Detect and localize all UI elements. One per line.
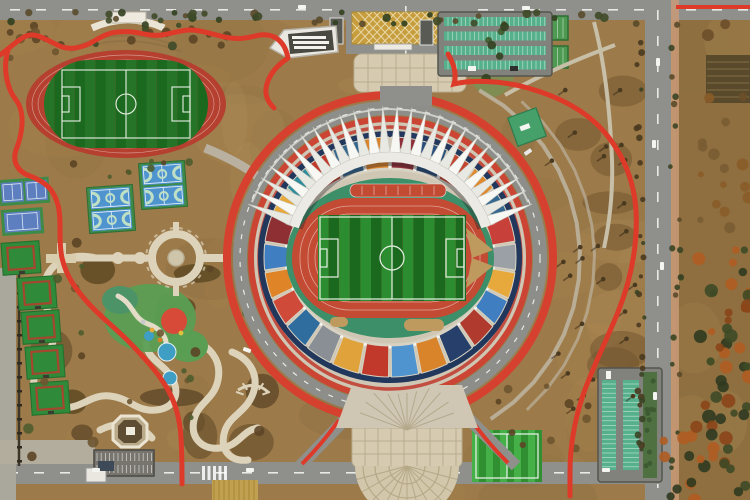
left-road <box>0 268 16 500</box>
octagon-pavilion <box>113 416 147 447</box>
north-ring-crossing <box>380 86 432 106</box>
basketball-courts <box>138 160 187 209</box>
soccer-pitch <box>318 215 466 301</box>
basketball-courts <box>86 184 135 233</box>
plaza-fan <box>355 466 459 500</box>
gate-booth-east <box>420 20 433 45</box>
southeast-parking-lot <box>598 368 662 482</box>
aerial-screenshot-sports-complex <box>0 0 750 500</box>
gate-bar <box>374 44 412 50</box>
yellow-pad <box>212 480 258 500</box>
pond <box>158 343 176 361</box>
red-play-circle <box>161 308 187 334</box>
aerial-photo-canvas <box>0 0 750 500</box>
pond-small <box>144 331 154 341</box>
